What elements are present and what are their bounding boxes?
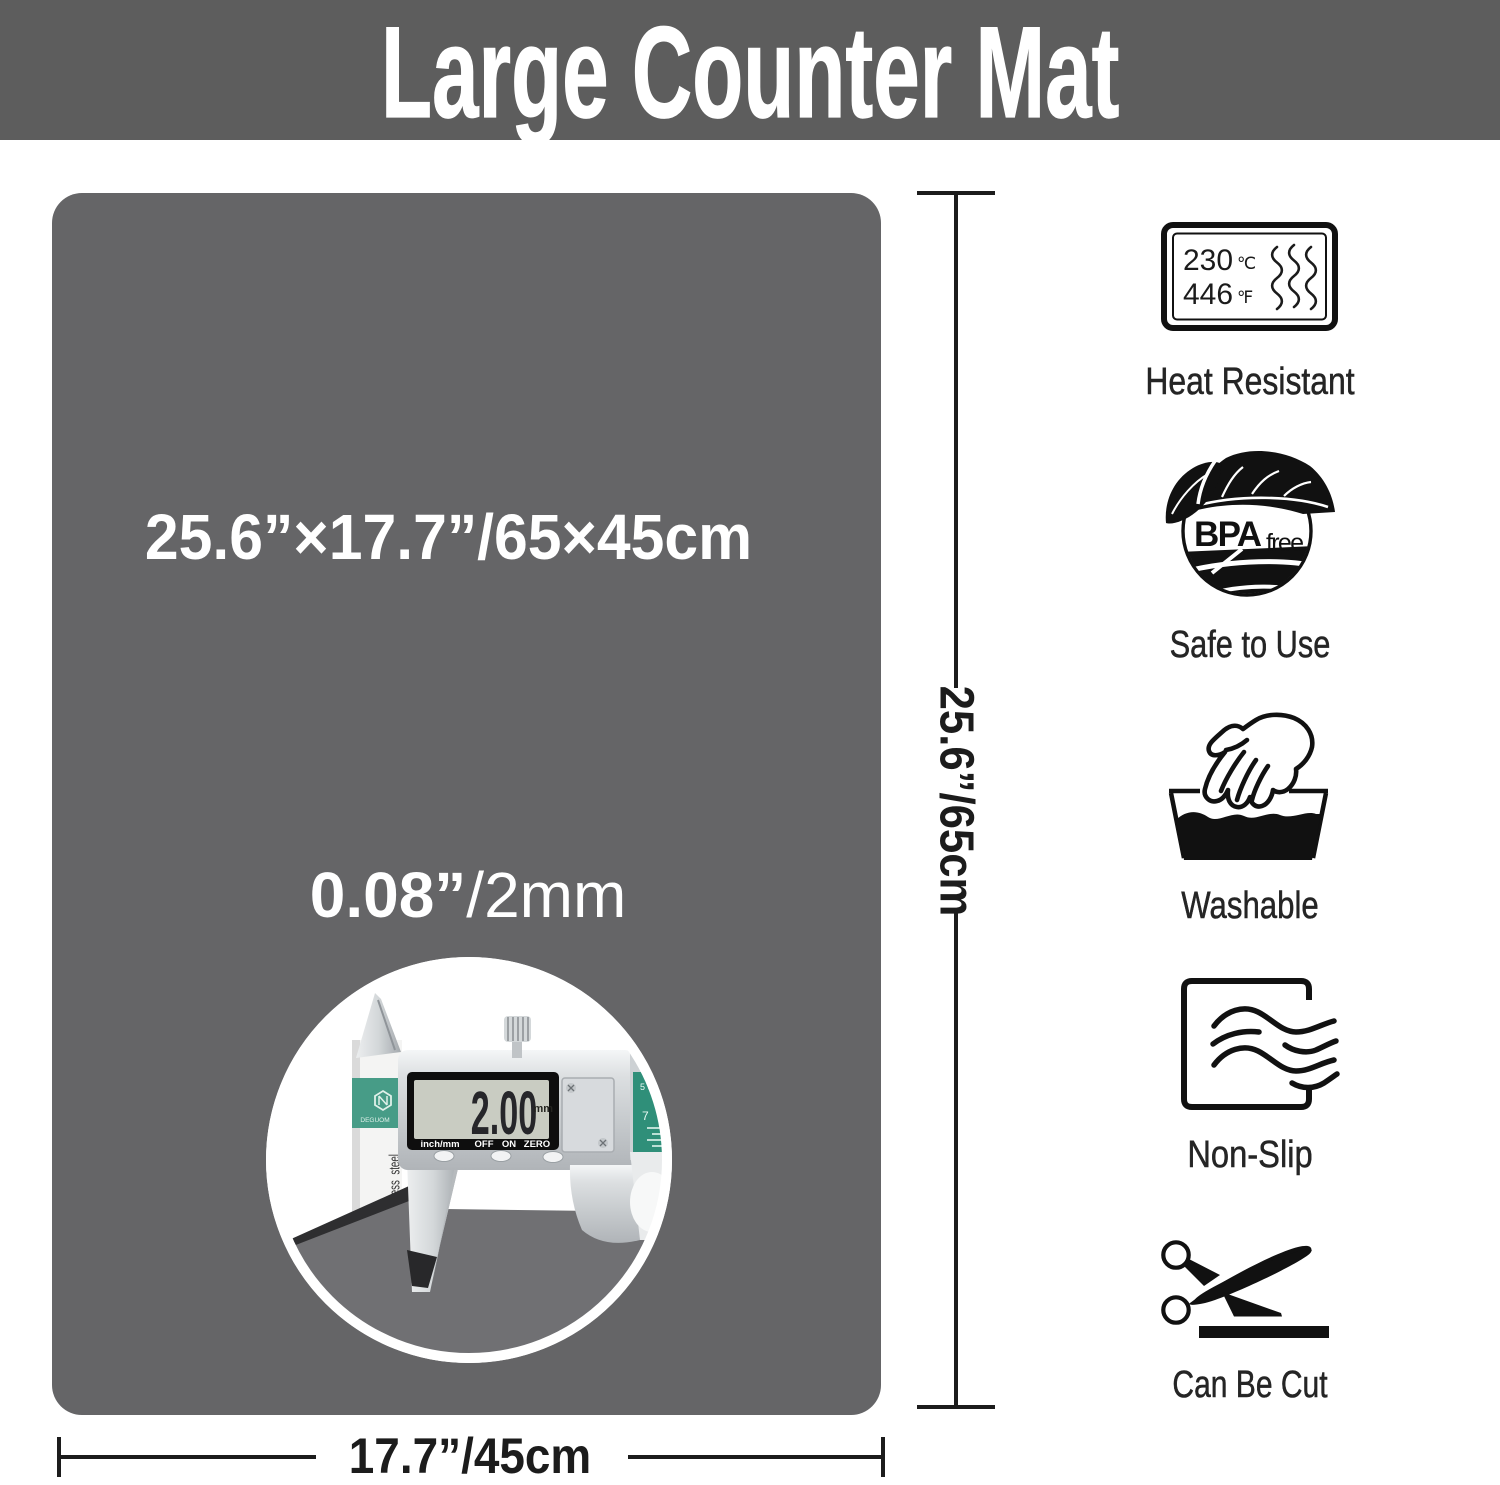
svg-text:℉: ℉ <box>1237 288 1253 307</box>
svg-text:7: 7 <box>642 1109 649 1123</box>
svg-text:OFF: OFF <box>475 1139 494 1150</box>
svg-text:ZERO: ZERO <box>524 1139 550 1150</box>
svg-text:2.00: 2.00 <box>471 1080 537 1148</box>
svg-text:℃: ℃ <box>1237 254 1256 273</box>
svg-text:free: free <box>1266 529 1304 557</box>
svg-text:446: 446 <box>1183 278 1233 311</box>
svg-text:inch/mm: inch/mm <box>420 1139 459 1150</box>
svg-text:BPA: BPA <box>1194 515 1262 554</box>
svg-text:mm: mm <box>533 1103 553 1115</box>
svg-text:DEGUOM: DEGUOM <box>360 1117 389 1124</box>
svg-text:ON: ON <box>502 1139 516 1150</box>
svg-text:230: 230 <box>1183 244 1233 277</box>
